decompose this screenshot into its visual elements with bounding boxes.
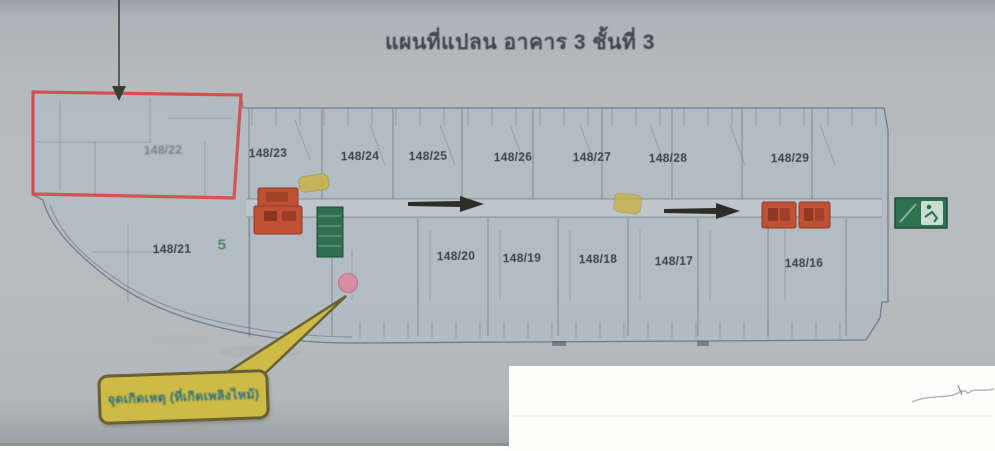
elevator-block-right-1 <box>762 202 796 228</box>
elevator-door-mark <box>264 211 277 221</box>
elevator-door-mark <box>815 208 824 221</box>
incident-dot <box>339 274 358 293</box>
yellow-marker-2 <box>613 193 642 215</box>
scan-mark <box>697 341 709 346</box>
elevator-door-mark <box>282 211 296 221</box>
stairwell-block <box>317 207 343 257</box>
signature-squiggle <box>912 385 994 402</box>
elevator-door-mark <box>768 208 778 221</box>
elevator-door-mark <box>780 208 790 221</box>
scan-smudge <box>150 335 210 345</box>
pointer-arrow <box>112 0 126 101</box>
elevator-door-mark <box>266 192 288 202</box>
elevator-door-mark <box>804 208 813 221</box>
scanned-floorplan-page: แผนที่แปลน อาคาร 3 ชั้นที่ 3 148/22148/2… <box>0 0 995 451</box>
elevator-block-right-2 <box>799 202 830 228</box>
page-title: แผนที่แปลน อาคาร 3 ชั้นที่ 3 <box>260 26 780 59</box>
incident-callout: จุดเกิดเหตุ (ที่เกิดเพลิงไหม้) <box>97 369 270 425</box>
scan-mark <box>552 341 566 346</box>
incident-callout-label: จุดเกิดเหตุ (ที่เกิดเพลิงไหม้) <box>107 384 259 409</box>
